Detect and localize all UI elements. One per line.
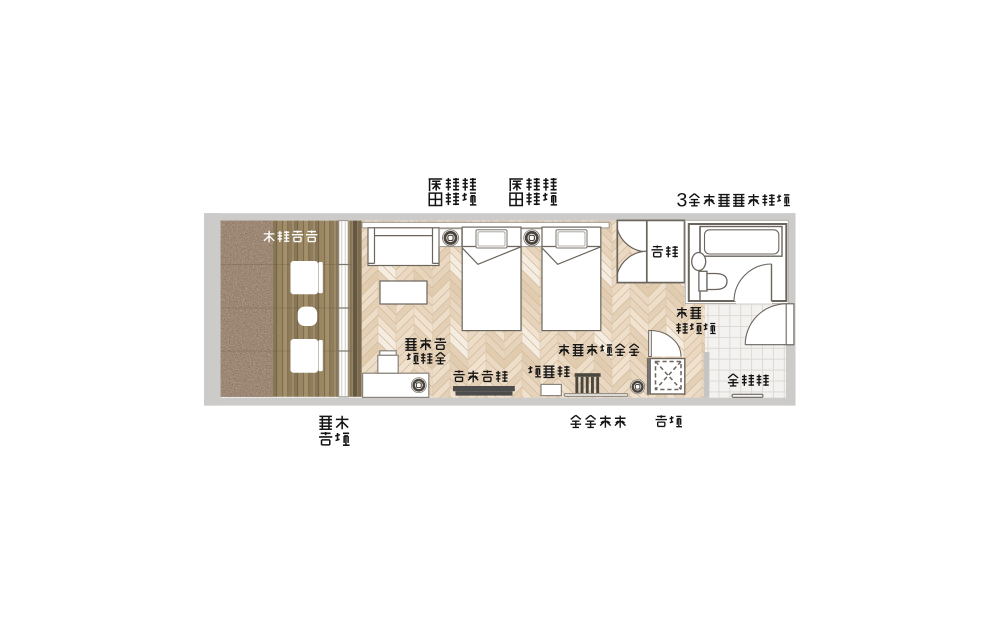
svg-text:3: 3 bbox=[677, 190, 688, 212]
